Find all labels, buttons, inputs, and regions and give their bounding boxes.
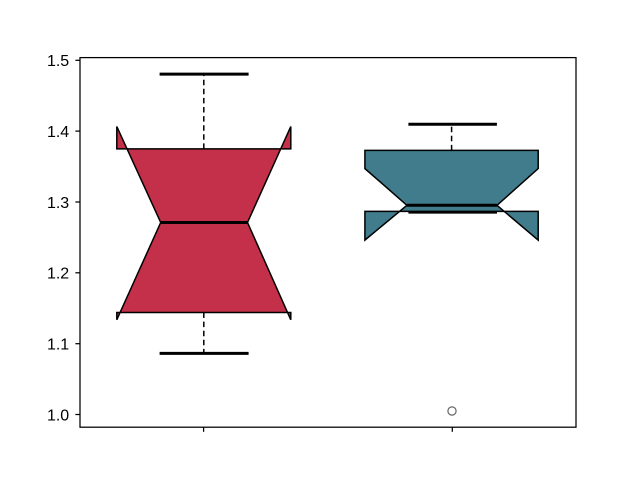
svg-text:1.1: 1.1 bbox=[47, 337, 69, 354]
svg-text:1.5: 1.5 bbox=[47, 53, 69, 70]
svg-text:1.4: 1.4 bbox=[47, 124, 69, 141]
svg-text:1.3: 1.3 bbox=[47, 195, 69, 212]
svg-text:1.2: 1.2 bbox=[47, 266, 69, 283]
svg-text:1.0: 1.0 bbox=[47, 407, 69, 424]
